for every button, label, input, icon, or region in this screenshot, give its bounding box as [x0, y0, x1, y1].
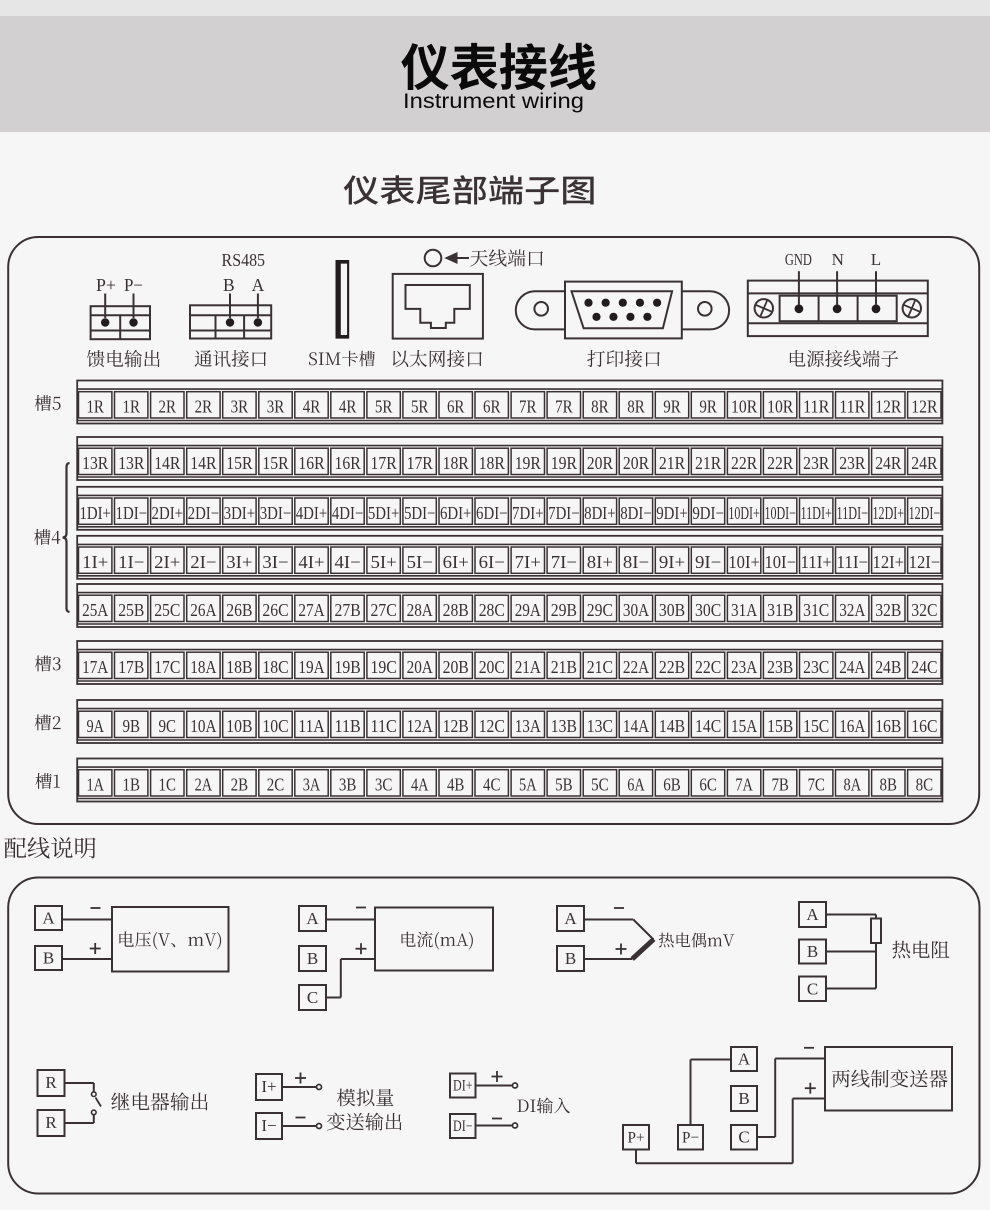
- svg-text:10I+: 10I+: [728, 552, 760, 572]
- svg-text:11A: 11A: [298, 716, 324, 736]
- svg-text:14A: 14A: [623, 716, 649, 736]
- svg-text:1C: 1C: [159, 775, 177, 795]
- svg-text:28A: 28A: [407, 600, 433, 620]
- svg-text:6R: 6R: [483, 397, 501, 417]
- svg-text:10I−: 10I−: [764, 552, 796, 572]
- svg-text:6I−: 6I−: [479, 552, 505, 572]
- svg-text:13R: 13R: [82, 453, 108, 473]
- svg-text:12R: 12R: [875, 397, 901, 417]
- svg-text:17C: 17C: [154, 657, 180, 677]
- svg-text:5R: 5R: [375, 397, 393, 417]
- svg-text:4A: 4A: [411, 775, 429, 795]
- svg-text:B: B: [738, 1089, 749, 1108]
- svg-text:19C: 19C: [371, 657, 397, 677]
- svg-text:7B: 7B: [771, 775, 789, 795]
- svg-text:A: A: [564, 909, 577, 928]
- svg-text:C: C: [738, 1128, 749, 1147]
- svg-text:23R: 23R: [803, 453, 829, 473]
- svg-text:2R: 2R: [195, 397, 213, 417]
- svg-text:11R: 11R: [803, 397, 829, 417]
- svg-text:16R: 16R: [335, 453, 361, 473]
- svg-text:16A: 16A: [839, 716, 865, 736]
- svg-text:16C: 16C: [911, 716, 937, 736]
- svg-text:1B: 1B: [123, 775, 141, 795]
- svg-text:6DI−: 6DI−: [476, 503, 508, 523]
- svg-text:7A: 7A: [735, 775, 753, 795]
- svg-text:11R: 11R: [839, 397, 865, 417]
- svg-text:26A: 26A: [190, 600, 216, 620]
- svg-text:21B: 21B: [551, 657, 577, 677]
- svg-text:12DI−: 12DI−: [909, 503, 941, 523]
- svg-text:20B: 20B: [443, 657, 469, 677]
- svg-text:10R: 10R: [767, 397, 793, 417]
- svg-text:9R: 9R: [699, 397, 717, 417]
- svg-text:22R: 22R: [731, 453, 757, 473]
- svg-text:I+: I+: [261, 1077, 276, 1096]
- svg-text:31B: 31B: [767, 600, 793, 620]
- svg-text:12R: 12R: [911, 397, 937, 417]
- svg-text:11DI+: 11DI+: [800, 503, 832, 523]
- svg-text:31A: 31A: [731, 600, 757, 620]
- svg-text:8DI+: 8DI+: [584, 503, 616, 523]
- svg-text:7DI−: 7DI−: [548, 503, 580, 523]
- svg-text:18A: 18A: [190, 657, 216, 677]
- svg-text:P−: P−: [124, 275, 143, 295]
- svg-text:A: A: [306, 909, 319, 928]
- svg-text:2DI+: 2DI+: [152, 503, 184, 523]
- svg-text:23R: 23R: [839, 453, 865, 473]
- svg-text:8DI−: 8DI−: [620, 503, 652, 523]
- svg-text:6R: 6R: [447, 397, 465, 417]
- svg-text:16B: 16B: [875, 716, 901, 736]
- svg-text:3A: 3A: [303, 775, 321, 795]
- svg-text:24A: 24A: [839, 657, 865, 677]
- svg-text:6A: 6A: [627, 775, 645, 795]
- svg-text:3DI−: 3DI−: [260, 503, 292, 523]
- svg-text:21R: 21R: [659, 453, 685, 473]
- svg-text:6DI+: 6DI+: [440, 503, 472, 523]
- svg-text:13C: 13C: [587, 716, 613, 736]
- svg-text:9DI−: 9DI−: [692, 503, 724, 523]
- svg-text:A: A: [252, 275, 265, 295]
- svg-text:24R: 24R: [911, 453, 937, 473]
- svg-text:P+: P+: [96, 275, 116, 295]
- svg-text:27B: 27B: [335, 600, 361, 620]
- svg-text:9B: 9B: [123, 716, 141, 736]
- svg-text:23A: 23A: [731, 657, 757, 677]
- svg-text:5I−: 5I−: [407, 552, 433, 572]
- svg-text:Instrument wiring: Instrument wiring: [403, 89, 584, 113]
- svg-text:22A: 22A: [623, 657, 649, 677]
- svg-text:C: C: [307, 988, 318, 1007]
- svg-text:25A: 25A: [82, 600, 108, 620]
- svg-text:30A: 30A: [623, 600, 649, 620]
- svg-text:3R: 3R: [267, 397, 285, 417]
- svg-text:23B: 23B: [767, 657, 793, 677]
- svg-text:DI−: DI−: [453, 1118, 473, 1135]
- svg-text:3I−: 3I−: [262, 552, 288, 572]
- svg-text:7R: 7R: [555, 397, 573, 417]
- svg-text:1I−: 1I−: [118, 552, 144, 572]
- svg-text:20R: 20R: [587, 453, 613, 473]
- svg-text:A: A: [738, 1050, 751, 1069]
- svg-text:C: C: [807, 980, 818, 999]
- svg-text:18R: 18R: [479, 453, 505, 473]
- svg-text:1R: 1R: [123, 397, 141, 417]
- svg-text:25C: 25C: [154, 600, 180, 620]
- svg-text:B: B: [807, 942, 818, 961]
- svg-text:1DI+: 1DI+: [79, 503, 111, 523]
- svg-text:8A: 8A: [844, 775, 862, 795]
- svg-text:13R: 13R: [118, 453, 144, 473]
- svg-text:B: B: [43, 949, 54, 968]
- svg-text:24C: 24C: [911, 657, 937, 677]
- svg-text:6I+: 6I+: [443, 552, 469, 572]
- svg-text:GND: GND: [785, 250, 812, 269]
- svg-text:12I−: 12I−: [909, 552, 941, 572]
- svg-text:3R: 3R: [231, 397, 249, 417]
- svg-text:17B: 17B: [118, 657, 144, 677]
- svg-text:29A: 29A: [515, 600, 541, 620]
- svg-text:22B: 22B: [659, 657, 685, 677]
- svg-text:5DI−: 5DI−: [404, 503, 436, 523]
- svg-text:19R: 19R: [515, 453, 541, 473]
- svg-text:21R: 21R: [695, 453, 721, 473]
- svg-text:RS485: RS485: [222, 250, 266, 270]
- svg-text:9A: 9A: [86, 716, 104, 736]
- svg-text:14R: 14R: [190, 453, 216, 473]
- svg-text:13B: 13B: [551, 716, 577, 736]
- svg-text:28B: 28B: [443, 600, 469, 620]
- svg-text:21A: 21A: [515, 657, 541, 677]
- svg-text:14C: 14C: [695, 716, 721, 736]
- svg-text:DI+: DI+: [453, 1078, 473, 1095]
- svg-text:10R: 10R: [731, 397, 757, 417]
- svg-text:P−: P−: [682, 1130, 699, 1147]
- svg-text:7I−: 7I−: [551, 552, 577, 572]
- svg-text:10C: 10C: [262, 716, 288, 736]
- svg-text:20A: 20A: [407, 657, 433, 677]
- svg-text:15R: 15R: [262, 453, 288, 473]
- svg-text:1DI−: 1DI−: [116, 503, 148, 523]
- svg-text:4B: 4B: [447, 775, 465, 795]
- svg-text:6B: 6B: [663, 775, 681, 795]
- svg-text:15A: 15A: [731, 716, 757, 736]
- svg-text:B: B: [307, 949, 318, 968]
- svg-text:32B: 32B: [875, 600, 901, 620]
- svg-text:2I+: 2I+: [154, 552, 180, 572]
- svg-text:4I−: 4I−: [335, 552, 361, 572]
- svg-text:A: A: [42, 909, 55, 928]
- svg-text:R: R: [45, 1073, 57, 1092]
- svg-text:2I−: 2I−: [190, 552, 216, 572]
- svg-text:20C: 20C: [479, 657, 505, 677]
- svg-text:2B: 2B: [231, 775, 249, 795]
- svg-text:29C: 29C: [587, 600, 613, 620]
- svg-text:7DI+: 7DI+: [512, 503, 544, 523]
- svg-text:31C: 31C: [803, 600, 829, 620]
- svg-text:11I+: 11I+: [800, 552, 832, 572]
- svg-text:7I+: 7I+: [515, 552, 541, 572]
- svg-text:21C: 21C: [587, 657, 613, 677]
- svg-text:30C: 30C: [695, 600, 721, 620]
- svg-text:R: R: [45, 1113, 57, 1132]
- svg-text:16R: 16R: [298, 453, 324, 473]
- svg-text:26B: 26B: [226, 600, 252, 620]
- svg-text:11DI−: 11DI−: [837, 503, 869, 523]
- svg-text:24B: 24B: [875, 657, 901, 677]
- svg-text:7R: 7R: [519, 397, 537, 417]
- svg-text:8I+: 8I+: [587, 552, 613, 572]
- svg-text:1R: 1R: [86, 397, 104, 417]
- svg-text:5R: 5R: [411, 397, 429, 417]
- svg-text:2DI−: 2DI−: [188, 503, 220, 523]
- svg-text:B: B: [223, 275, 235, 295]
- svg-text:22R: 22R: [767, 453, 793, 473]
- svg-text:22C: 22C: [695, 657, 721, 677]
- svg-text:18B: 18B: [226, 657, 252, 677]
- svg-text:4R: 4R: [303, 397, 321, 417]
- svg-text:20R: 20R: [623, 453, 649, 473]
- svg-text:4DI+: 4DI+: [296, 503, 328, 523]
- svg-text:2C: 2C: [267, 775, 285, 795]
- svg-text:4C: 4C: [483, 775, 501, 795]
- svg-text:26C: 26C: [262, 600, 288, 620]
- svg-text:5I+: 5I+: [371, 552, 397, 572]
- svg-text:19R: 19R: [551, 453, 577, 473]
- svg-text:9R: 9R: [663, 397, 681, 417]
- svg-text:8I−: 8I−: [623, 552, 649, 572]
- svg-text:30B: 30B: [659, 600, 685, 620]
- svg-text:12B: 12B: [443, 716, 469, 736]
- svg-text:12C: 12C: [479, 716, 505, 736]
- svg-text:11C: 11C: [371, 716, 397, 736]
- svg-text:15B: 15B: [767, 716, 793, 736]
- svg-text:9C: 9C: [159, 716, 177, 736]
- svg-text:17R: 17R: [371, 453, 397, 473]
- svg-text:14R: 14R: [154, 453, 180, 473]
- svg-text:18R: 18R: [443, 453, 469, 473]
- svg-text:9DI+: 9DI+: [656, 503, 688, 523]
- svg-text:18C: 18C: [262, 657, 288, 677]
- svg-text:15R: 15R: [226, 453, 252, 473]
- svg-text:7C: 7C: [807, 775, 825, 795]
- svg-text:10DI+: 10DI+: [728, 503, 760, 523]
- svg-text:19A: 19A: [298, 657, 324, 677]
- svg-text:10DI−: 10DI−: [764, 503, 796, 523]
- svg-text:1I+: 1I+: [82, 552, 108, 572]
- svg-text:8C: 8C: [916, 775, 934, 795]
- svg-text:17A: 17A: [82, 657, 108, 677]
- svg-text:B: B: [565, 949, 576, 968]
- svg-text:19B: 19B: [335, 657, 361, 677]
- svg-text:3DI+: 3DI+: [224, 503, 256, 523]
- svg-text:17R: 17R: [407, 453, 433, 473]
- svg-text:23C: 23C: [803, 657, 829, 677]
- svg-text:10B: 10B: [226, 716, 252, 736]
- svg-text:4DI−: 4DI−: [332, 503, 364, 523]
- svg-text:15C: 15C: [803, 716, 829, 736]
- svg-text:32C: 32C: [911, 600, 937, 620]
- svg-text:2R: 2R: [159, 397, 177, 417]
- svg-text:3B: 3B: [339, 775, 357, 795]
- svg-text:27A: 27A: [298, 600, 324, 620]
- svg-text:25B: 25B: [118, 600, 144, 620]
- svg-text:11I−: 11I−: [837, 552, 869, 572]
- svg-text:L: L: [871, 250, 881, 269]
- svg-text:A: A: [806, 905, 819, 924]
- svg-text:4R: 4R: [339, 397, 357, 417]
- svg-text:12I+: 12I+: [873, 552, 905, 572]
- svg-text:11B: 11B: [335, 716, 361, 736]
- svg-text:27C: 27C: [371, 600, 397, 620]
- svg-text:10A: 10A: [190, 716, 216, 736]
- svg-text:5B: 5B: [555, 775, 573, 795]
- svg-text:6C: 6C: [699, 775, 717, 795]
- svg-text:8R: 8R: [627, 397, 645, 417]
- svg-text:24R: 24R: [875, 453, 901, 473]
- svg-text:5A: 5A: [519, 775, 537, 795]
- svg-text:12DI+: 12DI+: [873, 503, 905, 523]
- svg-text:3C: 3C: [375, 775, 393, 795]
- svg-text:13A: 13A: [515, 716, 541, 736]
- svg-text:5C: 5C: [591, 775, 609, 795]
- svg-text:12A: 12A: [407, 716, 433, 736]
- svg-text:32A: 32A: [839, 600, 865, 620]
- svg-text:9I−: 9I−: [695, 552, 721, 572]
- svg-text:1A: 1A: [86, 775, 104, 795]
- svg-text:8R: 8R: [591, 397, 609, 417]
- svg-text:14B: 14B: [659, 716, 685, 736]
- svg-text:I−: I−: [261, 1116, 276, 1135]
- svg-text:3I+: 3I+: [226, 552, 252, 572]
- svg-text:28C: 28C: [479, 600, 505, 620]
- svg-text:5DI+: 5DI+: [368, 503, 400, 523]
- svg-text:29B: 29B: [551, 600, 577, 620]
- svg-text:4I+: 4I+: [298, 552, 324, 572]
- svg-text:N: N: [832, 250, 844, 269]
- svg-text:P+: P+: [628, 1130, 645, 1147]
- svg-text:8B: 8B: [880, 775, 898, 795]
- svg-text:2A: 2A: [195, 775, 213, 795]
- svg-text:9I+: 9I+: [659, 552, 685, 572]
